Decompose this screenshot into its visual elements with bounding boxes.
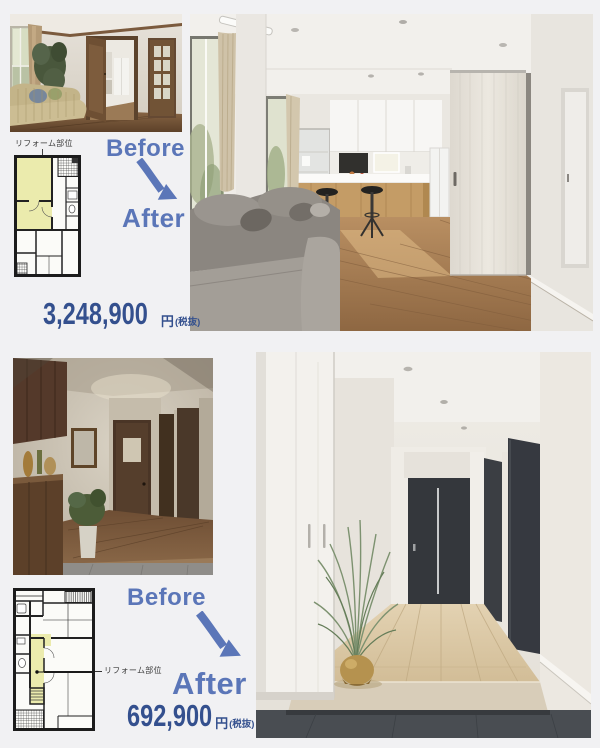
- curved-arrow-down-right-icon: [129, 158, 181, 206]
- curved-arrow-down-right-icon: [188, 611, 245, 664]
- after-label: After: [122, 205, 185, 231]
- price-tax-note: (税抜): [229, 721, 254, 729]
- floor-plan-entrance: [13, 588, 95, 731]
- renovation-area-label: リフォーム部位: [104, 667, 162, 675]
- price-currency: 円: [161, 316, 174, 327]
- price-amount: 3,248,900: [43, 301, 148, 327]
- renovation-area-label: リフォーム部位: [15, 140, 73, 148]
- after-photo-living-room: [190, 14, 593, 331]
- before-photo-living-room: [10, 14, 182, 132]
- leader-line: [95, 671, 102, 672]
- floor-plan-living: [14, 155, 81, 277]
- before-label: Before: [127, 586, 206, 610]
- price-tax-note: (税抜): [175, 319, 200, 327]
- price-amount: 692,900: [127, 703, 212, 729]
- price: 3,248,900円(税抜): [43, 301, 200, 327]
- before-photo-entrance-hall: [13, 358, 213, 575]
- after-label: After: [172, 668, 247, 699]
- price: 692,900円(税抜): [127, 703, 254, 729]
- after-photo-entrance-hall: [256, 352, 591, 738]
- price-currency: 円: [215, 718, 228, 729]
